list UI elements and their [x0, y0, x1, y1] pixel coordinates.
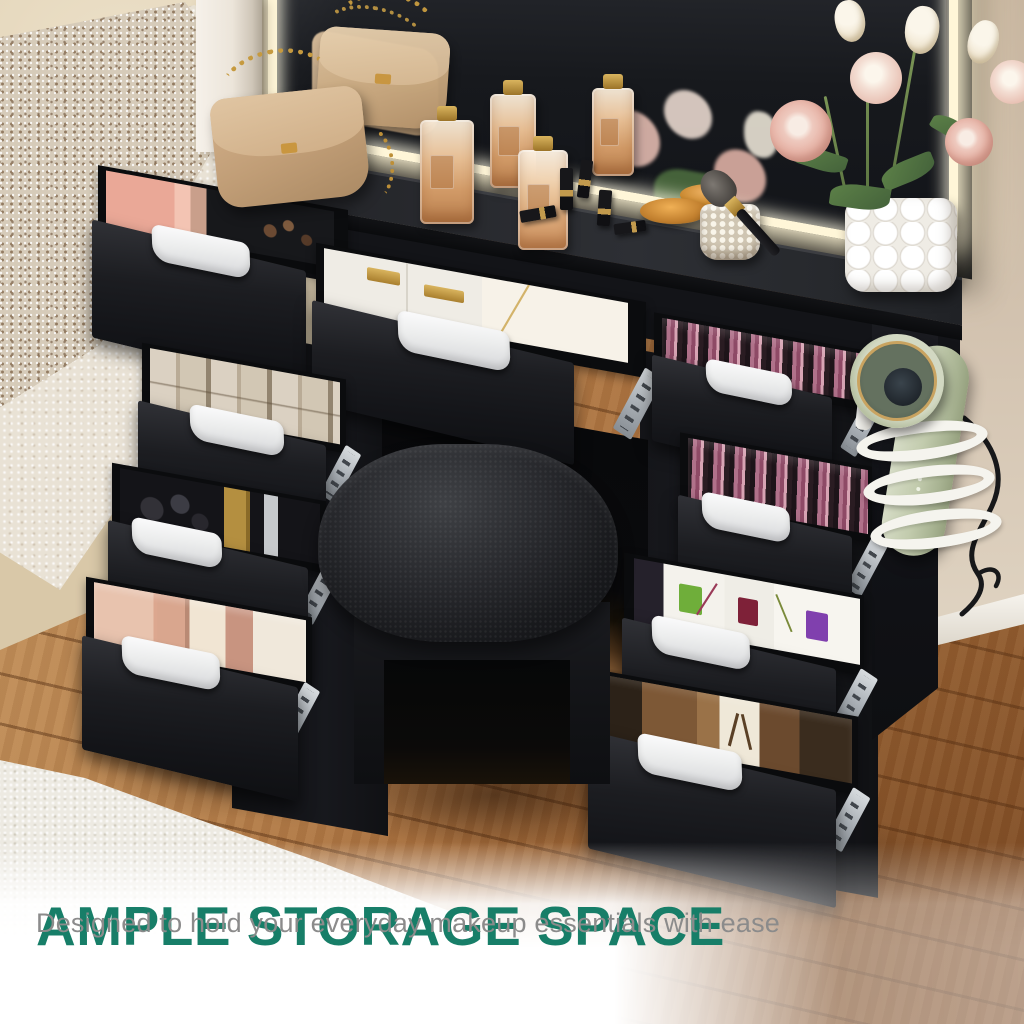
tulip-bud — [963, 17, 1004, 68]
dryer-intake — [884, 368, 922, 406]
stool-cushion — [318, 444, 618, 642]
gold-cosmetic-jar-lid — [640, 198, 708, 224]
lipstick — [597, 190, 612, 227]
stool-base-opening — [384, 660, 570, 784]
gold-clasp — [375, 74, 392, 85]
lipstick — [560, 168, 573, 210]
product-photo: AMPLE STORAGE SPACE Designed to hold you… — [0, 0, 1024, 1024]
tulip-bud — [902, 4, 942, 56]
leaf — [878, 150, 938, 191]
palette-swatch-purple — [806, 610, 829, 642]
dryer-head — [850, 334, 944, 428]
rose-bloom — [990, 60, 1024, 104]
palette-swatch-red — [738, 597, 758, 627]
box-print — [740, 714, 751, 750]
rose-bloom — [945, 118, 993, 166]
vanity-stool — [312, 444, 626, 810]
dryer-gold-ring — [857, 341, 937, 421]
tulip-bud — [832, 0, 869, 44]
hair-dryer-in-holder — [850, 296, 1024, 606]
gold-clasp — [367, 267, 400, 286]
box-print — [728, 713, 739, 747]
palette-print — [775, 594, 792, 632]
rose-bloom — [770, 100, 832, 162]
gold-clasp — [280, 142, 297, 154]
flower-bouquet — [740, 0, 1024, 260]
rose-bloom — [850, 52, 902, 104]
caption-subheadline: Designed to hold your everyday makeup es… — [36, 908, 780, 939]
gold-clasp — [424, 284, 464, 303]
handbag-front — [209, 84, 372, 209]
perfume-bottle — [592, 88, 634, 176]
leaf — [829, 181, 892, 213]
perfume-bottle — [420, 120, 474, 224]
